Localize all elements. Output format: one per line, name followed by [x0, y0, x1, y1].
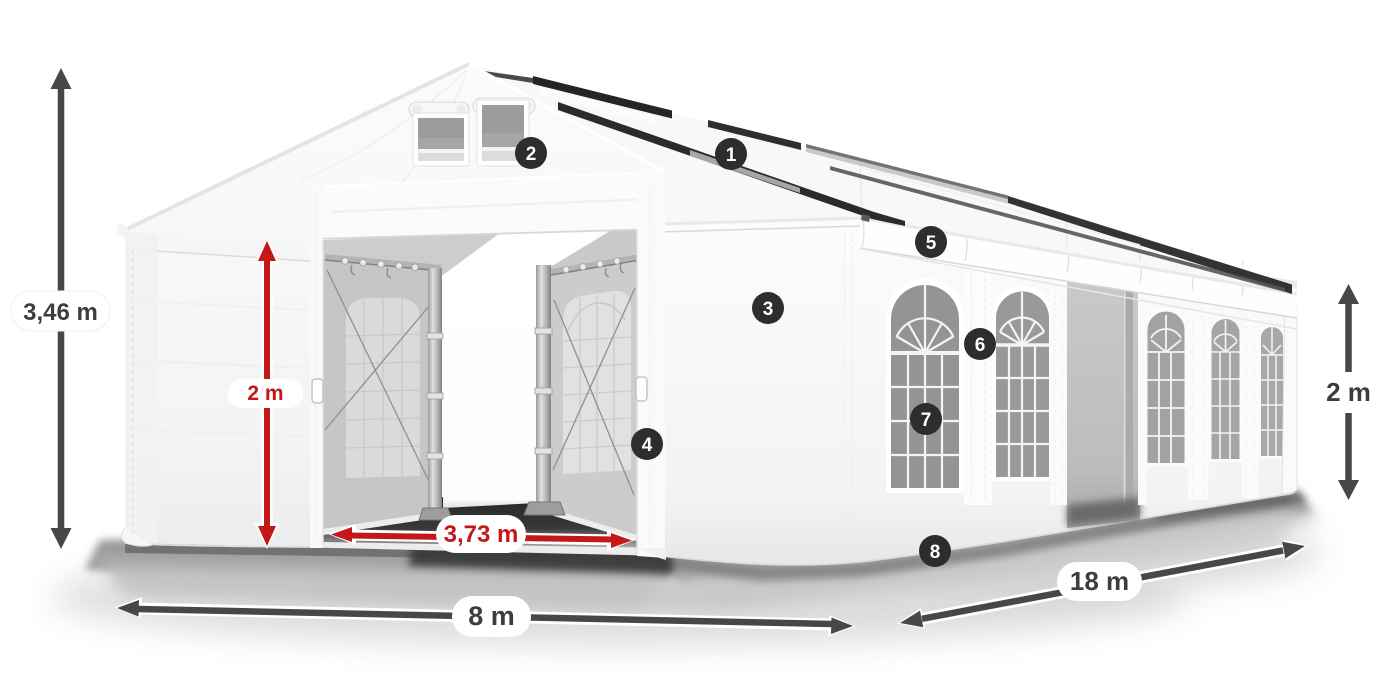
svg-text:6: 6 — [975, 335, 986, 356]
svg-text:18 m: 18 m — [1070, 566, 1129, 596]
svg-text:2 m: 2 m — [1326, 377, 1371, 407]
svg-text:8: 8 — [930, 542, 941, 563]
svg-text:1: 1 — [726, 145, 737, 166]
svg-text:3,46 m: 3,46 m — [23, 299, 98, 326]
svg-text:4: 4 — [642, 435, 653, 456]
svg-text:3,73 m: 3,73 m — [444, 521, 519, 548]
svg-text:2 m: 2 m — [247, 382, 283, 405]
svg-text:2: 2 — [526, 144, 537, 165]
svg-text:3: 3 — [763, 299, 774, 320]
svg-text:8 m: 8 m — [468, 601, 515, 631]
svg-text:5: 5 — [926, 233, 937, 254]
svg-text:7: 7 — [921, 410, 932, 431]
